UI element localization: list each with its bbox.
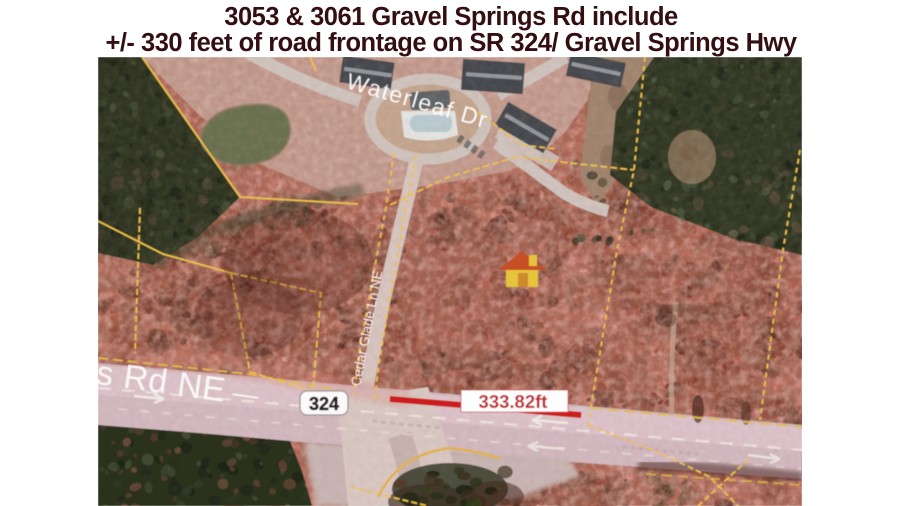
svg-text:333.82ft: 333.82ft [479,391,548,412]
svg-text:324: 324 [309,394,339,414]
